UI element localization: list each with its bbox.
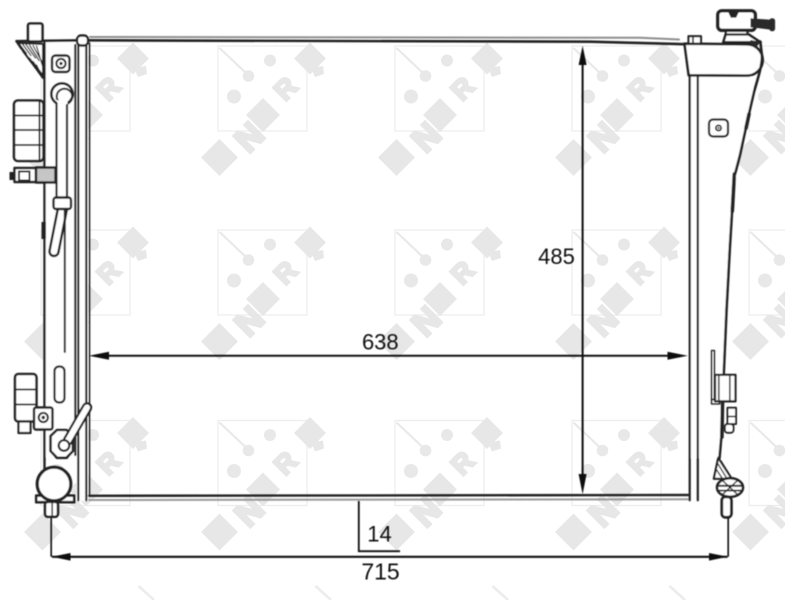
svg-text:485: 485: [538, 244, 575, 269]
svg-text:715: 715: [361, 559, 399, 585]
svg-text:638: 638: [362, 330, 399, 355]
svg-text:14: 14: [367, 522, 391, 547]
